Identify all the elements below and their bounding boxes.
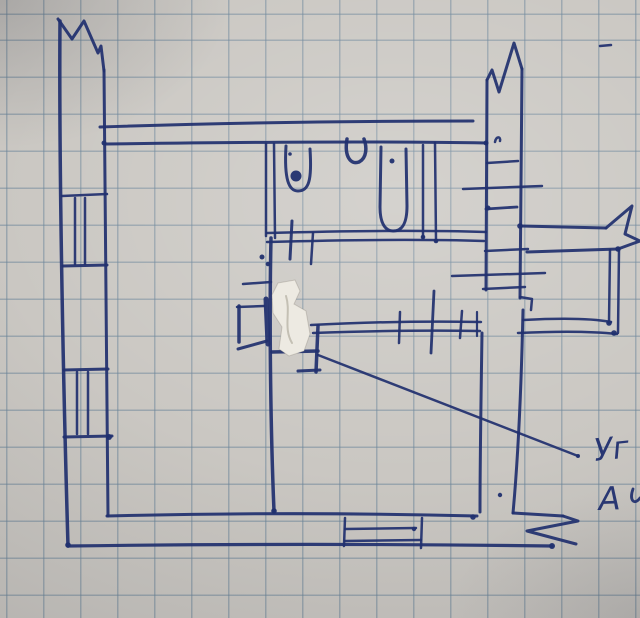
window-bottom [421,518,422,548]
annex-right [618,250,619,333]
ink-mark [495,137,500,142]
window-left-upper [63,265,107,266]
radiator-tick [452,273,545,276]
wall-bathroom-bottom [267,240,484,242]
ink-dot [498,493,502,497]
ink-dot [266,262,271,267]
break-mark-top-right [487,43,522,92]
break-mark-corner [606,206,640,249]
ink-dot [615,246,621,252]
partition-wall [311,322,481,325]
ink-dot [106,434,112,440]
door-mark [290,221,292,259]
window-bottom [345,540,421,541]
ink-dot [484,141,489,146]
ink-dots [65,141,621,550]
wall-jog [521,226,606,228]
wall-step [520,297,532,310]
ink-dot [517,223,523,229]
window-left-lower [64,369,108,370]
radiator-tick [486,207,517,209]
break-mark-bottom-right [527,516,578,544]
wall-top-outer [100,121,473,127]
window-left-upper [62,194,107,196]
wall-inner-right-lower [480,333,482,512]
ink-dot [611,330,617,336]
wall-top-inner [106,142,486,144]
wall-outer-right [520,69,522,298]
wall-center-vertical [270,238,274,511]
partition-wall [313,331,480,333]
radiator-tick [487,161,518,163]
fixture-box [238,341,267,349]
wall-notch [298,370,320,371]
floor-plan-sketch: Уг А [0,0,640,618]
wall-bottom-inner [107,514,477,516]
partial-letter [632,489,640,502]
ink-dot [288,152,292,156]
ink-dot [606,320,612,326]
ink-dot [421,235,426,240]
fixture-box [266,299,268,344]
partition-tick [460,311,462,338]
ink-strokes [58,19,640,548]
ink-dot [576,454,580,458]
photo-of-sketch: Уг А [0,0,640,618]
wall-tick [311,233,313,264]
ink-dot [291,171,302,182]
ink-dot [470,514,476,520]
ink-dot [390,159,395,164]
annex-bottom [518,332,617,334]
ink-dot [549,543,555,549]
wall-bathroom-left [274,144,275,238]
fixture-box [237,306,264,307]
break-mark-top-left [58,19,104,71]
partition-tick [431,291,434,353]
ink-dot [102,141,107,146]
radiator-tick [463,186,542,189]
wall-inner-right [486,80,487,290]
wall-tick [243,282,271,284]
wall-bathroom-bottom [267,231,486,233]
leader-line [318,355,578,456]
ink-dot [434,239,439,244]
wall-bathroom-right [435,143,436,241]
window-bottom [345,528,416,529]
annex-top [527,249,618,252]
wall-outer-left [60,21,68,546]
partition-tick [399,312,400,343]
annotation-text-line1: Уг [592,429,631,469]
ink-dot [271,508,277,514]
ink-dash [600,45,611,46]
whiteout-patch [272,280,310,356]
wall-bottom-outer [68,545,552,547]
wall-inner-left [104,70,108,516]
ink-dot [486,206,491,211]
ink-dot [412,527,416,531]
annex-bottom [523,319,611,322]
wall-bottom-step [513,513,563,516]
ink-dot [260,255,265,260]
annotation-text-line2: А [596,479,621,518]
annex-right [609,250,610,323]
ink-dot [65,542,71,548]
window-left-lower [64,436,112,437]
wall-outer-right-lower [513,310,523,513]
